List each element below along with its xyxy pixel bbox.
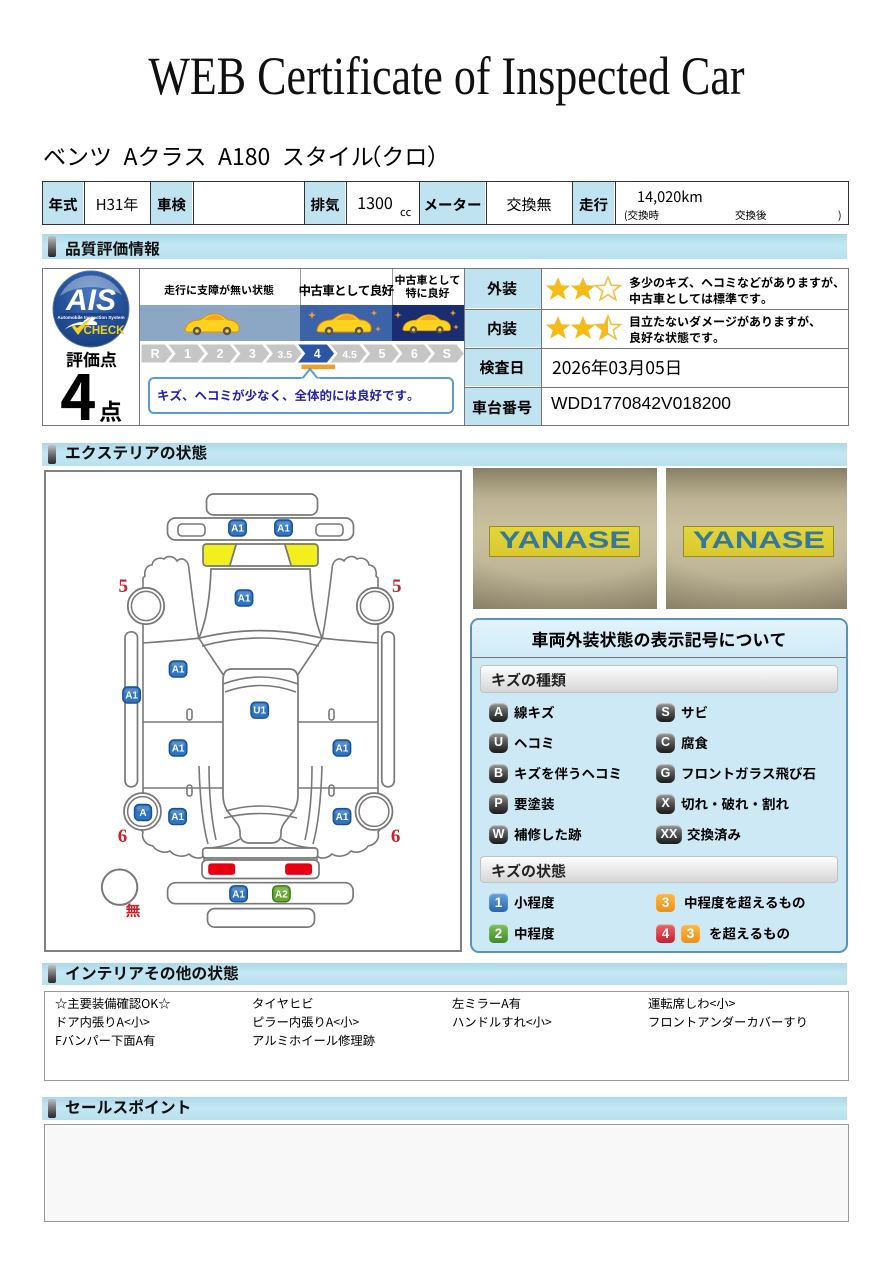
svg-text:A1: A1 xyxy=(172,743,185,754)
svg-text:CHECK: CHECK xyxy=(84,325,126,337)
svg-text:R: R xyxy=(151,347,160,361)
svg-text:A1: A1 xyxy=(277,523,290,534)
svg-text:A1: A1 xyxy=(231,523,244,534)
svg-text:3.5: 3.5 xyxy=(277,349,292,361)
svg-text:A2: A2 xyxy=(275,889,288,900)
svg-text:AIS: AIS xyxy=(65,284,116,317)
svg-text:2: 2 xyxy=(217,347,224,361)
svg-text:6: 6 xyxy=(118,826,128,847)
svg-text:6: 6 xyxy=(411,347,418,361)
svg-text:A1: A1 xyxy=(232,889,245,900)
svg-text:5: 5 xyxy=(392,576,402,597)
svg-text:5: 5 xyxy=(379,347,386,361)
svg-text:4: 4 xyxy=(314,347,321,361)
svg-text:6: 6 xyxy=(391,826,401,847)
svg-text:A1: A1 xyxy=(125,690,138,701)
svg-text:A1: A1 xyxy=(336,743,349,754)
svg-text:1: 1 xyxy=(184,347,191,361)
svg-text:5: 5 xyxy=(119,576,129,597)
svg-text:A1: A1 xyxy=(336,812,349,823)
svg-text:U1: U1 xyxy=(253,706,266,717)
svg-text:A1: A1 xyxy=(172,664,185,675)
svg-text:A: A xyxy=(139,808,146,819)
svg-text:A1: A1 xyxy=(171,812,184,823)
svg-text:S: S xyxy=(443,347,451,361)
svg-text:A1: A1 xyxy=(238,593,251,604)
svg-text:4.5: 4.5 xyxy=(342,349,357,361)
svg-text:3: 3 xyxy=(249,347,256,361)
